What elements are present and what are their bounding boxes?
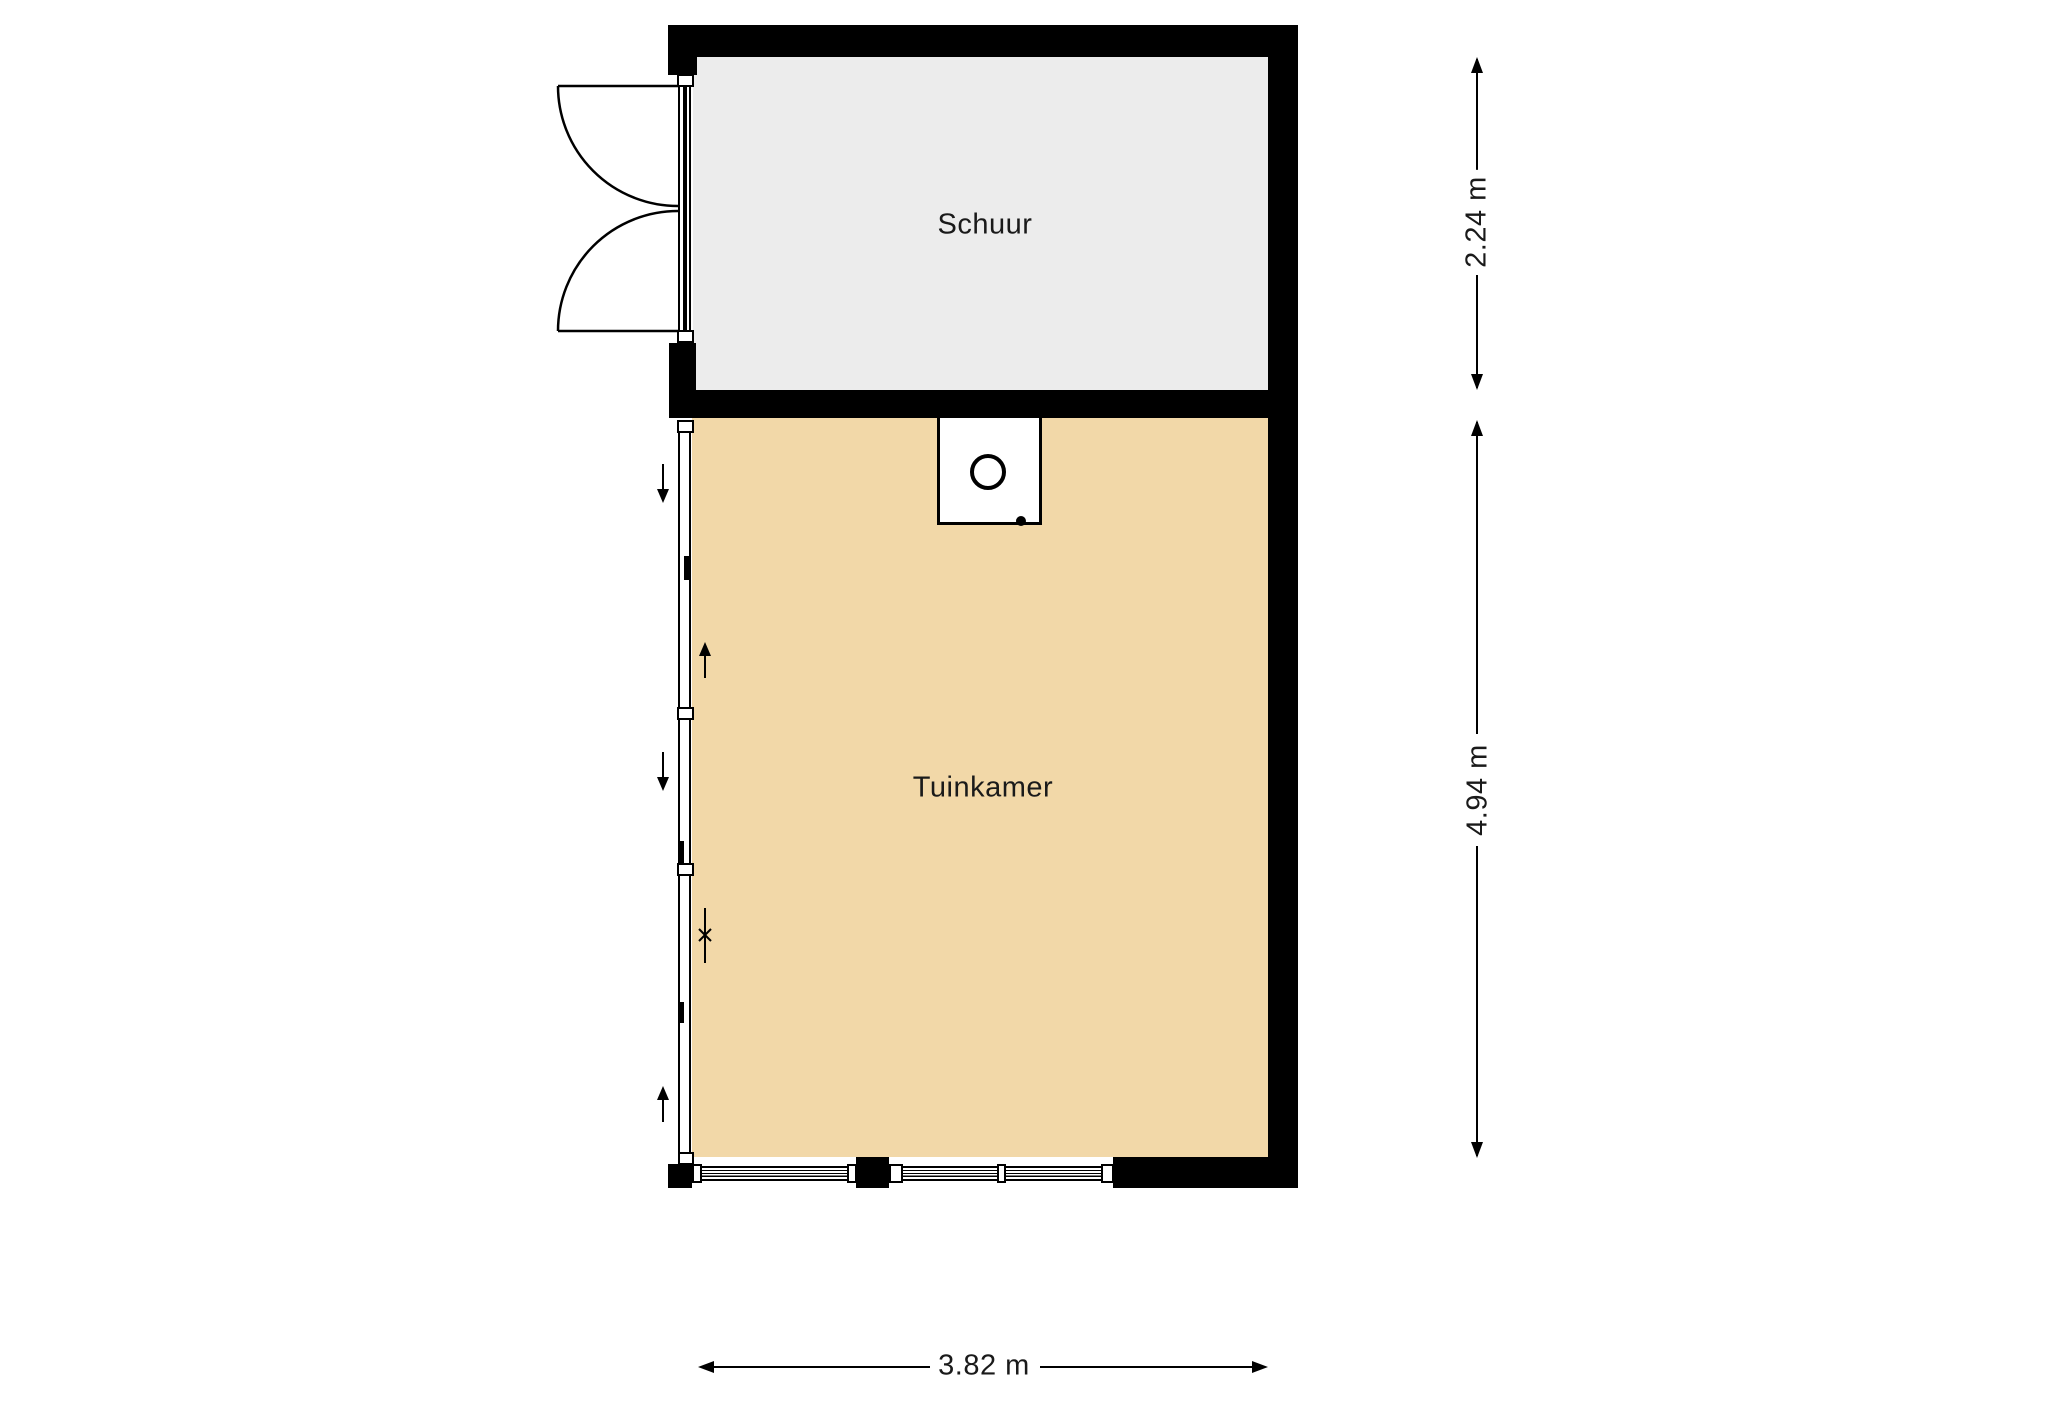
stove-flue-dot — [1016, 516, 1026, 526]
dimension-label-tuinkamer-depth: 4.94 m — [1462, 738, 1495, 842]
door-swing-arc-bottom — [558, 211, 678, 331]
window-band-1 — [702, 1166, 847, 1181]
window-junction-4 — [997, 1164, 1006, 1183]
door-junction-top — [677, 74, 694, 87]
dim-width-arrow-left — [698, 1361, 714, 1373]
wall-top — [668, 25, 1298, 57]
panel-overlap-mark-2 — [679, 841, 684, 863]
window-junction-2 — [847, 1164, 857, 1183]
window-junction-5 — [1101, 1164, 1114, 1183]
wall-post-bottom-left — [668, 1164, 692, 1188]
wall-pillar-bottom-center — [856, 1157, 889, 1188]
double-door-frame — [678, 86, 691, 331]
dim-schuur-arrow-up — [1471, 57, 1483, 73]
window-band-2 — [903, 1166, 997, 1181]
wall-divider — [669, 390, 1298, 418]
wall-right — [1268, 25, 1298, 1188]
dim-tuinkamer-arrow-down — [1471, 1142, 1483, 1158]
double-door-panel — [683, 86, 687, 331]
window-junction-3 — [889, 1164, 903, 1183]
stove — [937, 418, 1042, 525]
window-junction-1 — [692, 1164, 702, 1183]
slide-arrow-down-1-head — [657, 489, 669, 503]
dim-width-arrow-right — [1252, 1361, 1268, 1373]
slide-arrow-up-2-head — [657, 1086, 669, 1100]
wall-divider-stub — [669, 343, 696, 418]
door-junction-bottom — [677, 330, 694, 343]
tuinkamer-room-label: Tuinkamer — [913, 772, 1053, 805]
schuur-room-label: Schuur — [938, 209, 1033, 242]
window-band-3 — [1006, 1166, 1101, 1181]
sliding-door-junction-mid2 — [677, 863, 694, 876]
dimension-label-total-width: 3.82 m — [932, 1350, 1036, 1383]
wall-bottom-right — [1113, 1157, 1298, 1188]
dimension-label-schuur-depth: 2.24 m — [1461, 170, 1494, 274]
panel-overlap-mark-3 — [679, 1002, 684, 1023]
wall-post-top-left — [668, 25, 697, 75]
floorplan-canvas: Schuur Tuinkamer 2.24 m 4.94 m 3.82 m — [0, 0, 2048, 1404]
sliding-door-junction-mid1 — [677, 707, 694, 720]
door-swing-arc-top — [558, 86, 678, 206]
dim-schuur-arrow-down — [1471, 374, 1483, 390]
stove-burner-icon — [970, 454, 1006, 490]
slide-arrow-down-2-head — [657, 777, 669, 791]
panel-overlap-mark-1 — [684, 556, 689, 580]
dim-tuinkamer-arrow-up — [1471, 420, 1483, 436]
sliding-door-junction-top — [677, 420, 694, 433]
